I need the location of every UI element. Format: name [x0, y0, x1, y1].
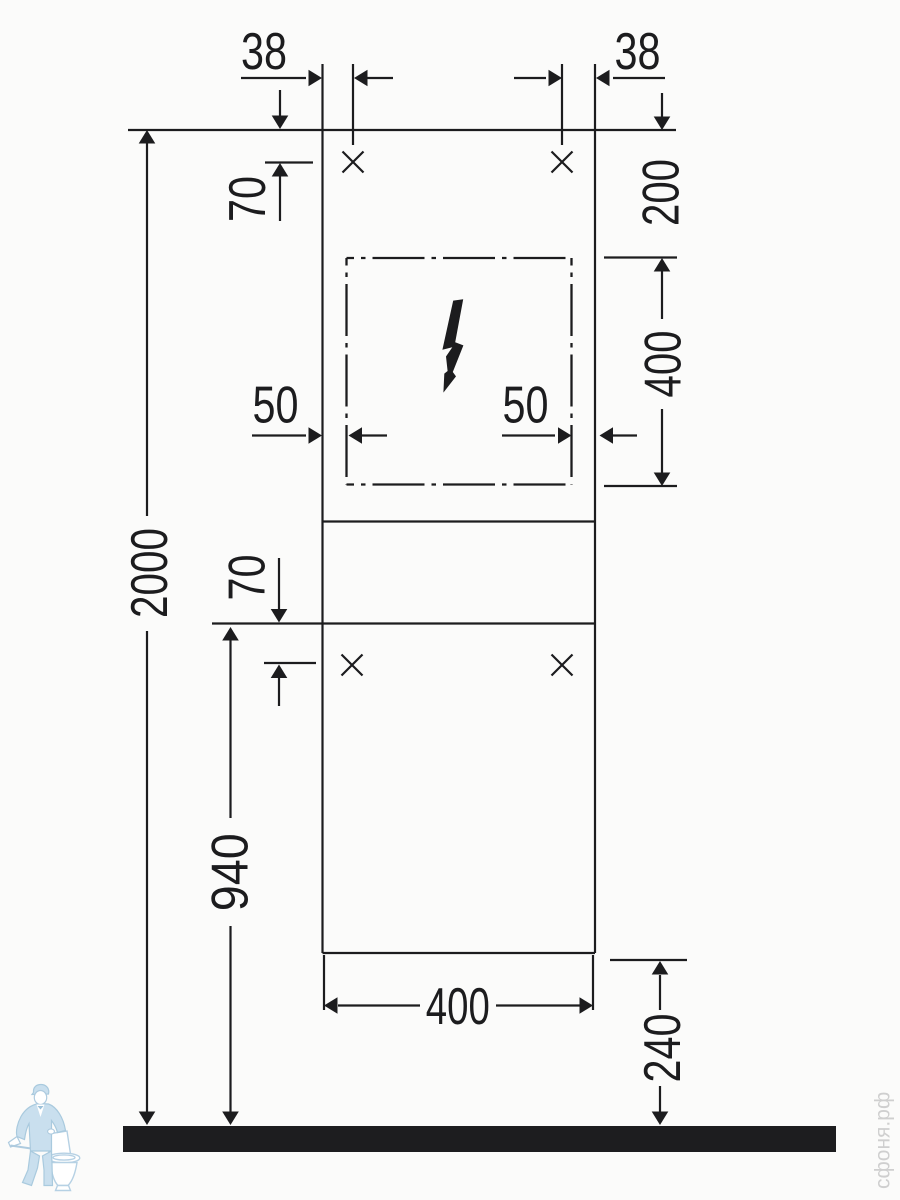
svg-text:400: 400 — [426, 978, 490, 1036]
svg-text:940: 940 — [202, 833, 260, 911]
svg-text:240: 240 — [634, 1014, 692, 1083]
svg-text:38: 38 — [615, 23, 661, 81]
svg-text:38: 38 — [241, 23, 287, 81]
svg-text:50: 50 — [503, 376, 549, 434]
svg-text:сфоня.рф: сфоня.рф — [872, 1092, 895, 1189]
svg-text:70: 70 — [219, 555, 277, 601]
svg-text:2000: 2000 — [121, 528, 179, 618]
svg-text:70: 70 — [219, 176, 277, 222]
svg-text:200: 200 — [633, 159, 691, 226]
svg-text:50: 50 — [253, 376, 299, 434]
svg-text:400: 400 — [635, 331, 693, 398]
